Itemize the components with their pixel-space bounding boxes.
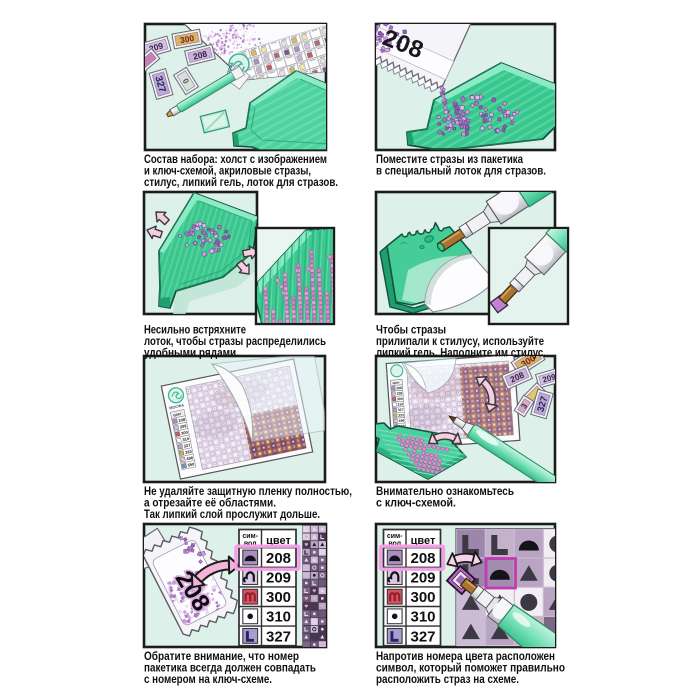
svg-text:в специальный лоток для стразо: в специальный лоток для стразов. [376,164,546,178]
svg-text:сим-: сим- [387,533,403,540]
svg-text:496: 496 [398,419,404,423]
svg-text:с ключ-схемой.: с ключ-схемой. [376,495,456,509]
svg-text:208: 208 [266,550,291,567]
svg-text:расположить страз на схеме.: расположить страз на схеме. [376,672,519,686]
svg-text:цвет: цвет [392,380,400,385]
svg-text:209: 209 [266,570,291,587]
svg-text:327: 327 [398,408,404,412]
svg-text:327: 327 [266,628,291,645]
svg-text:300: 300 [397,397,403,401]
svg-text:300: 300 [410,589,435,606]
svg-text:208: 208 [410,550,435,567]
svg-text:333: 333 [398,413,404,417]
svg-text:стилус, липкий гель, лоток для: стилус, липкий гель, лоток для стразов. [144,175,338,189]
svg-text:Так липкий слой прослужит доль: Так липкий слой прослужит дольше. [144,507,320,521]
svg-text:310: 310 [266,609,291,626]
svg-text:209: 209 [410,570,435,587]
svg-text:209: 209 [397,391,403,395]
svg-text:сим-: сим- [242,533,258,540]
svg-text:удобными рядами.: удобными рядами. [144,345,239,359]
svg-text:310: 310 [410,609,435,626]
svg-text:с номером на ключ-схеме.: с номером на ключ-схеме. [144,672,272,686]
svg-text:липкий гель. Наполните им стил: липкий гель. Наполните им стилус. [376,345,546,359]
svg-text:327: 327 [410,628,435,645]
svg-text:300: 300 [266,589,291,606]
svg-text:310: 310 [397,402,403,406]
svg-text:208: 208 [396,386,402,390]
